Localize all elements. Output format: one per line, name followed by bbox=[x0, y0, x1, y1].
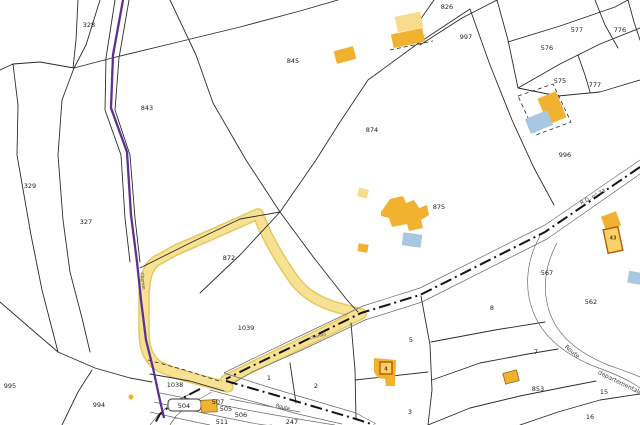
parcel-label: 506 bbox=[235, 411, 247, 419]
building-annex bbox=[402, 232, 423, 248]
buildings bbox=[129, 11, 640, 412]
parcel-label: 874 bbox=[366, 126, 378, 134]
parcel-label: 1039 bbox=[238, 324, 255, 332]
parcel-label: 562 bbox=[585, 298, 597, 306]
parcel-label: 567 bbox=[541, 269, 553, 277]
parcel-label: 875 bbox=[433, 203, 445, 211]
parcel-label: 328 bbox=[83, 21, 95, 29]
map-labels: 3288433293278458269975777765765757779968… bbox=[4, 3, 640, 425]
parcel-label: 247 bbox=[286, 418, 298, 425]
parcel-label: 3 bbox=[408, 408, 412, 416]
parcel-label: 327 bbox=[80, 218, 92, 226]
road-name-label: Route bbox=[275, 403, 291, 412]
parcel-label: 576 bbox=[541, 44, 553, 52]
parcel-label: 5 bbox=[409, 336, 413, 344]
parcel-label: 996 bbox=[559, 151, 571, 159]
road-name-label: Route bbox=[563, 344, 581, 361]
parcel-label: 2 bbox=[314, 382, 318, 390]
parcel-label: 575 bbox=[554, 77, 566, 85]
parcel-label: 853 bbox=[532, 385, 544, 393]
road-name-label: R.D. n° 23 bbox=[579, 188, 607, 207]
parcel-label: 329 bbox=[24, 182, 36, 190]
parcel-label: 845 bbox=[287, 57, 299, 65]
parcel-boundary-lines bbox=[0, 0, 640, 425]
parcel-label: 504 bbox=[178, 402, 190, 410]
parcel-label: 995 bbox=[4, 382, 16, 390]
parcel-label: 577 bbox=[571, 26, 583, 34]
parcel-label: 16 bbox=[586, 413, 594, 421]
parcel-label: 776 bbox=[614, 26, 626, 34]
parcel-label: 1 bbox=[267, 374, 271, 382]
parcel-label: 1038 bbox=[167, 381, 184, 389]
building-label: 43 bbox=[610, 236, 617, 242]
parcel-label: 994 bbox=[93, 401, 105, 409]
parcel-label: 777 bbox=[589, 81, 601, 89]
parcel-label: 997 bbox=[460, 33, 472, 41]
building-annex bbox=[627, 271, 640, 286]
building-light bbox=[357, 187, 369, 198]
parcel-label: 511 bbox=[216, 418, 228, 425]
highlighted-path bbox=[144, 214, 361, 387]
parcel-label: 8 bbox=[490, 304, 494, 312]
parcel-label: 7 bbox=[534, 348, 538, 356]
building bbox=[503, 370, 519, 384]
parcel-label: 843 bbox=[141, 104, 153, 112]
building-small bbox=[129, 395, 134, 400]
building-cluster bbox=[381, 196, 429, 231]
parcel-label: 15 bbox=[600, 388, 608, 396]
parcel-label: 826 bbox=[441, 3, 453, 11]
building-label: 4 bbox=[384, 367, 388, 373]
map-canvas[interactable]: 3288433293278458269975777765765757779968… bbox=[0, 0, 640, 425]
parcel-label: 872 bbox=[223, 254, 235, 262]
cadastral-map[interactable]: 3288433293278458269975777765765757779968… bbox=[0, 0, 640, 425]
building bbox=[357, 243, 368, 253]
parcel-label: 505 bbox=[220, 405, 232, 413]
building bbox=[334, 46, 357, 64]
